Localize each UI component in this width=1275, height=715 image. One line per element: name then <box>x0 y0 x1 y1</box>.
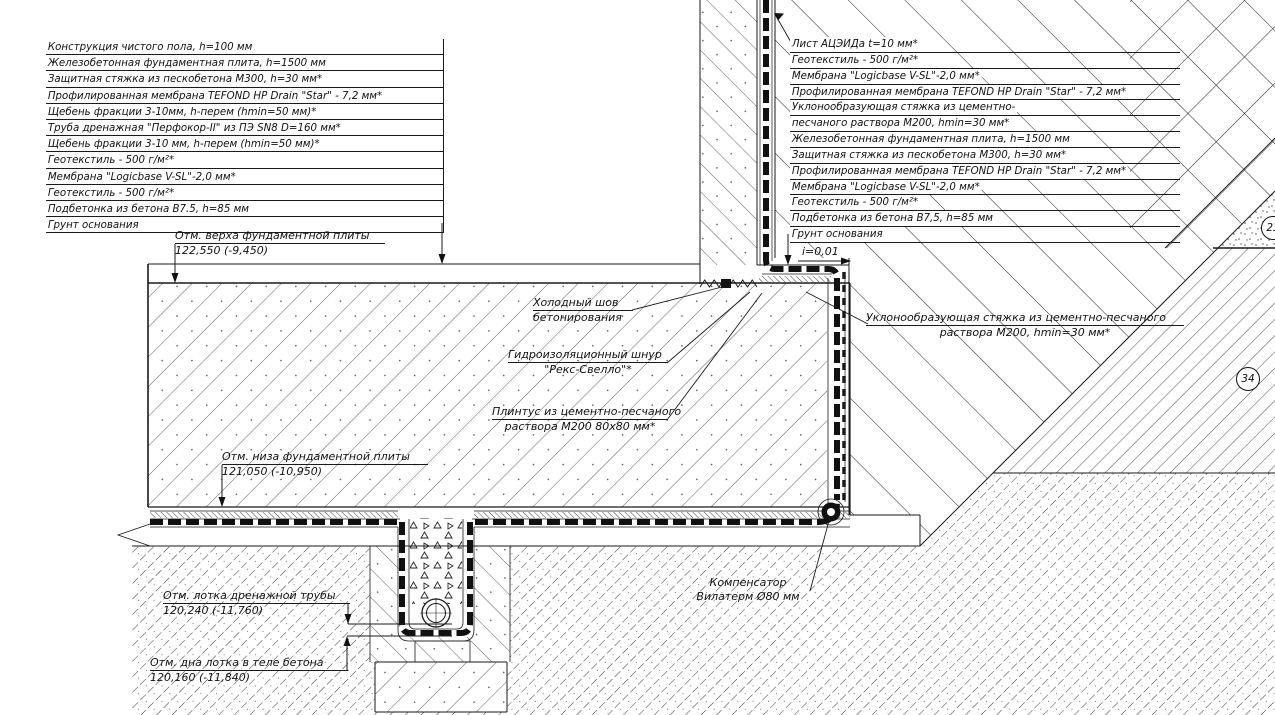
elevation-label: Отм. низа фундаментной плиты <box>222 450 428 465</box>
callout-text: "Рекс-Свелло"* <box>508 363 668 377</box>
layer-row: Защитная стяжка из пескобетона М300, h=3… <box>46 71 443 87</box>
elevation-pipe-invert: Отм. лотка дренажной трубы 120,240 (-11,… <box>163 589 350 617</box>
layer-row: Щебень фракции 3-10 мм, h-перем (hmin=50… <box>46 136 443 152</box>
elevation-label: Отм. верха фундаментной плиты <box>175 229 385 244</box>
slope-label: i=0,01 <box>802 245 839 259</box>
layer-row: Геотекстиль - 500 г/м²* <box>46 152 443 168</box>
marker-number: 23 <box>1266 222 1275 234</box>
callout-cold-joint: Холодный шов бетонирования <box>533 296 633 324</box>
layer-row: Уклонообразующая стяжка из цементно- <box>790 100 1180 116</box>
callout-text: Гидроизоляционный шнур <box>508 348 668 363</box>
layer-row: Геотекстиль - 500 г/м²* <box>46 185 443 201</box>
layer-row: Железобетонная фундаментная плита, h=150… <box>46 55 443 71</box>
callout-text: Компенсатор <box>683 576 813 590</box>
layer-row: Профилированная мембрана TEFOND HP Drain… <box>790 85 1180 101</box>
layer-row: Мембрана "Logicbase V-SL"-2,0 мм* <box>46 169 443 185</box>
layer-row: Железобетонная фундаментная плита, h=150… <box>790 132 1180 148</box>
layer-row: Грунт основания <box>790 227 1180 243</box>
elevation-label: Отм. дна лотка в теле бетона <box>150 656 348 671</box>
layer-row: Конструкция чистого пола, h=100 мм <box>46 39 443 55</box>
elevation-value: 120,160 (-11,840) <box>150 671 348 685</box>
slope-value: i=0,01 <box>802 245 839 258</box>
callout-text: раствора М200, hmin=30 мм* <box>866 326 1184 340</box>
elevation-tray-bottom: Отм. дна лотка в теле бетона 120,160 (-1… <box>150 656 348 684</box>
layer-row: Геотекстиль - 500 г/м²* <box>790 53 1180 69</box>
callout-text: Вилатерм Ø80 мм <box>683 590 813 604</box>
callout-text: Плинтус из цементно-песчаного <box>492 405 668 420</box>
layer-row: Профилированная мембрана TEFOND HP Drain… <box>46 88 443 104</box>
callout-plinth: Плинтус из цементно-песчаного раствора М… <box>492 405 668 433</box>
elevation-value: 122,550 (-9,450) <box>175 244 385 258</box>
layer-row: песчаного раствора М200, hmin=30 мм* <box>790 116 1180 132</box>
layer-row: Защитная стяжка из пескобетона М300, h=3… <box>790 148 1180 164</box>
elevation-label: Отм. лотка дренажной трубы <box>163 589 350 604</box>
marker-number: 34 <box>1241 373 1254 385</box>
layer-row: Мембрана "Logicbase V-SL"-2,0 мм* <box>790 180 1180 196</box>
callout-slope-screed: Уклонообразующая стяжка из цементно-песч… <box>866 311 1184 339</box>
callout-text: раствора М200 80х80 мм* <box>492 420 668 434</box>
callout-compensator: Компенсатор Вилатерм Ø80 мм <box>683 576 813 603</box>
layer-row: Труба дренажная "Перфокор-II" из ПЭ SN8 … <box>46 120 443 136</box>
position-marker-34: 34 <box>1236 367 1260 391</box>
layer-row: Лист АЦЭИДа t=10 мм* <box>790 37 1180 53</box>
layer-row: Щебень фракции 3-10мм, h-перем (hmin=50 … <box>46 104 443 120</box>
construction-detail-drawing: Конструкция чистого пола, h=100 мм Желез… <box>0 0 1275 715</box>
wall-layers-legend: Лист АЦЭИДа t=10 мм* Геотекстиль - 500 г… <box>790 37 1180 243</box>
layer-row: Профилированная мембрана TEFOND HP Drain… <box>790 164 1180 180</box>
elevation-value: 121,050 (-10,950) <box>222 465 428 479</box>
layer-row: Подбетонка из бетона В7,5, h=85 мм <box>790 211 1180 227</box>
elevation-slab-bottom: Отм. низа фундаментной плиты 121,050 (-1… <box>222 450 428 478</box>
callout-text: бетонирования <box>533 311 633 325</box>
layer-row: Подбетонка из бетона В7.5, h=85 мм <box>46 201 443 217</box>
callout-waterstop: Гидроизоляционный шнур "Рекс-Свелло"* <box>508 348 668 376</box>
floor-layers-legend: Конструкция чистого пола, h=100 мм Желез… <box>46 39 444 233</box>
callout-text: Уклонообразующая стяжка из цементно-песч… <box>866 311 1184 326</box>
elevation-value: 120,240 (-11,760) <box>163 604 350 618</box>
layer-row: Мембрана "Logicbase V-SL"-2,0 мм* <box>790 69 1180 85</box>
layer-row: Геотекстиль - 500 г/м²* <box>790 195 1180 211</box>
elevation-slab-top: Отм. верха фундаментной плиты 122,550 (-… <box>175 229 385 257</box>
callout-text: Холодный шов <box>533 296 633 311</box>
